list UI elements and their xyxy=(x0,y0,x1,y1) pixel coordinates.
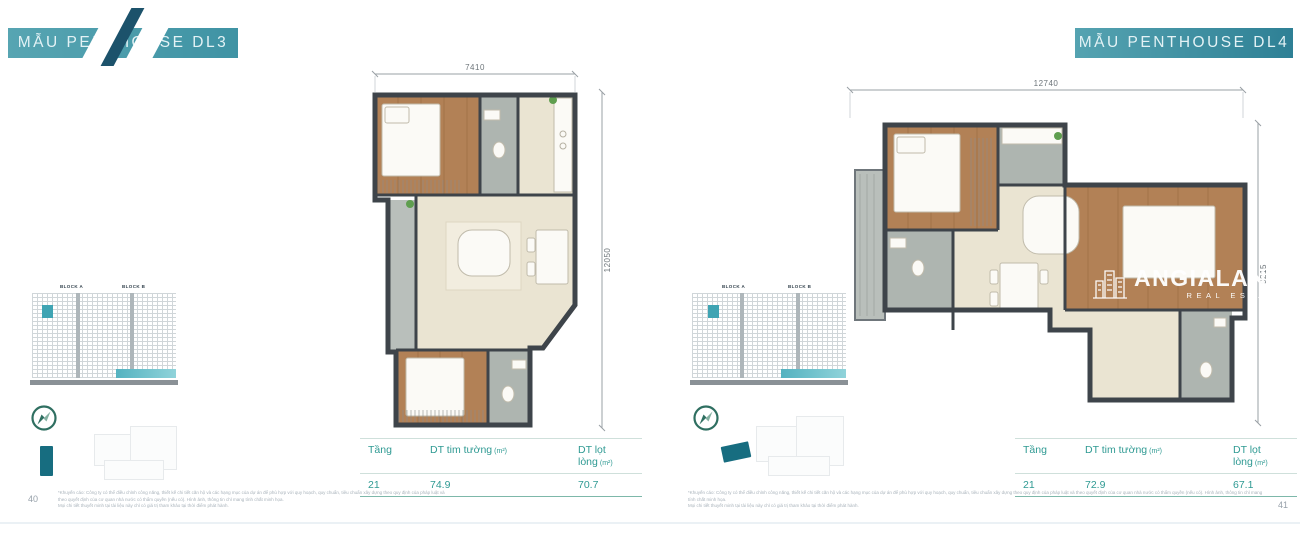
balcony-floor xyxy=(388,200,416,350)
unit-position-marker xyxy=(40,446,53,476)
col-gross: DT tim tường(m²) xyxy=(430,444,578,456)
wardrobe-2 xyxy=(398,410,486,422)
dim-side-dl3: 12050 xyxy=(603,248,612,273)
ground-line xyxy=(690,380,848,385)
kitchen-counter xyxy=(554,98,572,192)
col-floor: Tầng xyxy=(368,444,430,456)
page-bottom-edge xyxy=(0,522,1300,524)
toilet-1 xyxy=(912,260,924,276)
title-banner-dl4: MẪU PENTHOUSE DL4 xyxy=(1075,28,1293,58)
disclaimer-right: *Khuyến cáo: Công ty có thể điều chỉnh c… xyxy=(688,490,1263,510)
plant-icon xyxy=(406,200,414,208)
col-floor: Tầng xyxy=(1023,444,1085,456)
podium-band xyxy=(781,369,846,378)
bed-2 xyxy=(406,358,464,416)
dim-top-dl3: 7410 xyxy=(465,63,485,72)
highlighted-unit xyxy=(708,305,719,318)
podium-band xyxy=(116,369,176,378)
disclaimer-left: *Khuyến cáo: Công ty có thể điều chỉnh c… xyxy=(58,490,448,510)
toilet-2 xyxy=(1200,362,1212,378)
building-elevation-dl3: BLOCK A BLOCK B xyxy=(30,283,178,387)
col-net: DT lọt lòng(m²) xyxy=(1233,444,1297,468)
toilet-1 xyxy=(493,142,505,158)
floorplan-dl3: 7410 12050 xyxy=(358,62,658,434)
building-elevation-dl4: BLOCK A BLOCK B xyxy=(690,283,848,387)
block-a-label: BLOCK A xyxy=(60,284,83,289)
plant-icon xyxy=(1054,132,1062,140)
watermark-title: ANGIALAND xyxy=(1134,266,1286,290)
angialand-watermark: ANGIALAND REAL ESTATE xyxy=(1092,266,1286,300)
banner-dl4-label: MẪU PENTHOUSE DL4 xyxy=(1079,34,1289,52)
unit-position-marker xyxy=(721,441,752,462)
elevation-grid xyxy=(692,293,846,378)
key-plan-dl3 xyxy=(32,420,182,482)
block-a-label: BLOCK A xyxy=(722,284,745,289)
page-number-left: 40 xyxy=(28,494,38,504)
elevation-grid xyxy=(32,293,176,378)
block-b-label: BLOCK B xyxy=(788,284,811,289)
floorplan-dl4: 12740 9215 xyxy=(838,78,1300,438)
watermark-subtitle: REAL ESTATE xyxy=(1134,291,1286,300)
sofa xyxy=(1023,196,1079,254)
net-value: 70.7 xyxy=(578,479,642,491)
page-number-right: 41 xyxy=(1278,500,1288,510)
col-net: DT lọt lòng(m²) xyxy=(578,444,642,468)
gross-value: 74.9 xyxy=(430,479,578,491)
block-b-label: BLOCK B xyxy=(122,284,145,289)
dim-top-dl4: 12740 xyxy=(1034,79,1059,88)
wardrobe xyxy=(970,138,992,226)
area-table-dl3: Tầng DT tim tường(m²) DT lọt lòng(m²) 21… xyxy=(360,438,642,497)
buildings-icon xyxy=(1092,266,1128,300)
toilet-2 xyxy=(502,386,514,402)
key-plan-dl4 xyxy=(696,408,846,480)
corridor-floor xyxy=(1090,310,1180,400)
highlighted-unit xyxy=(42,305,53,318)
brochure-page: MẪU PENTHOUSE DL3 xyxy=(0,0,1300,534)
dining-table xyxy=(1000,263,1038,313)
dining-table xyxy=(536,230,568,284)
ground-line xyxy=(30,380,178,385)
wardrobe-1 xyxy=(378,180,460,193)
kitchen-counter xyxy=(1002,128,1062,144)
col-gross: DT tim tường(m²) xyxy=(1085,444,1233,456)
area-table-dl4: Tầng DT tim tường(m²) DT lọt lòng(m²) 21… xyxy=(1015,438,1297,497)
sofa xyxy=(458,230,510,276)
